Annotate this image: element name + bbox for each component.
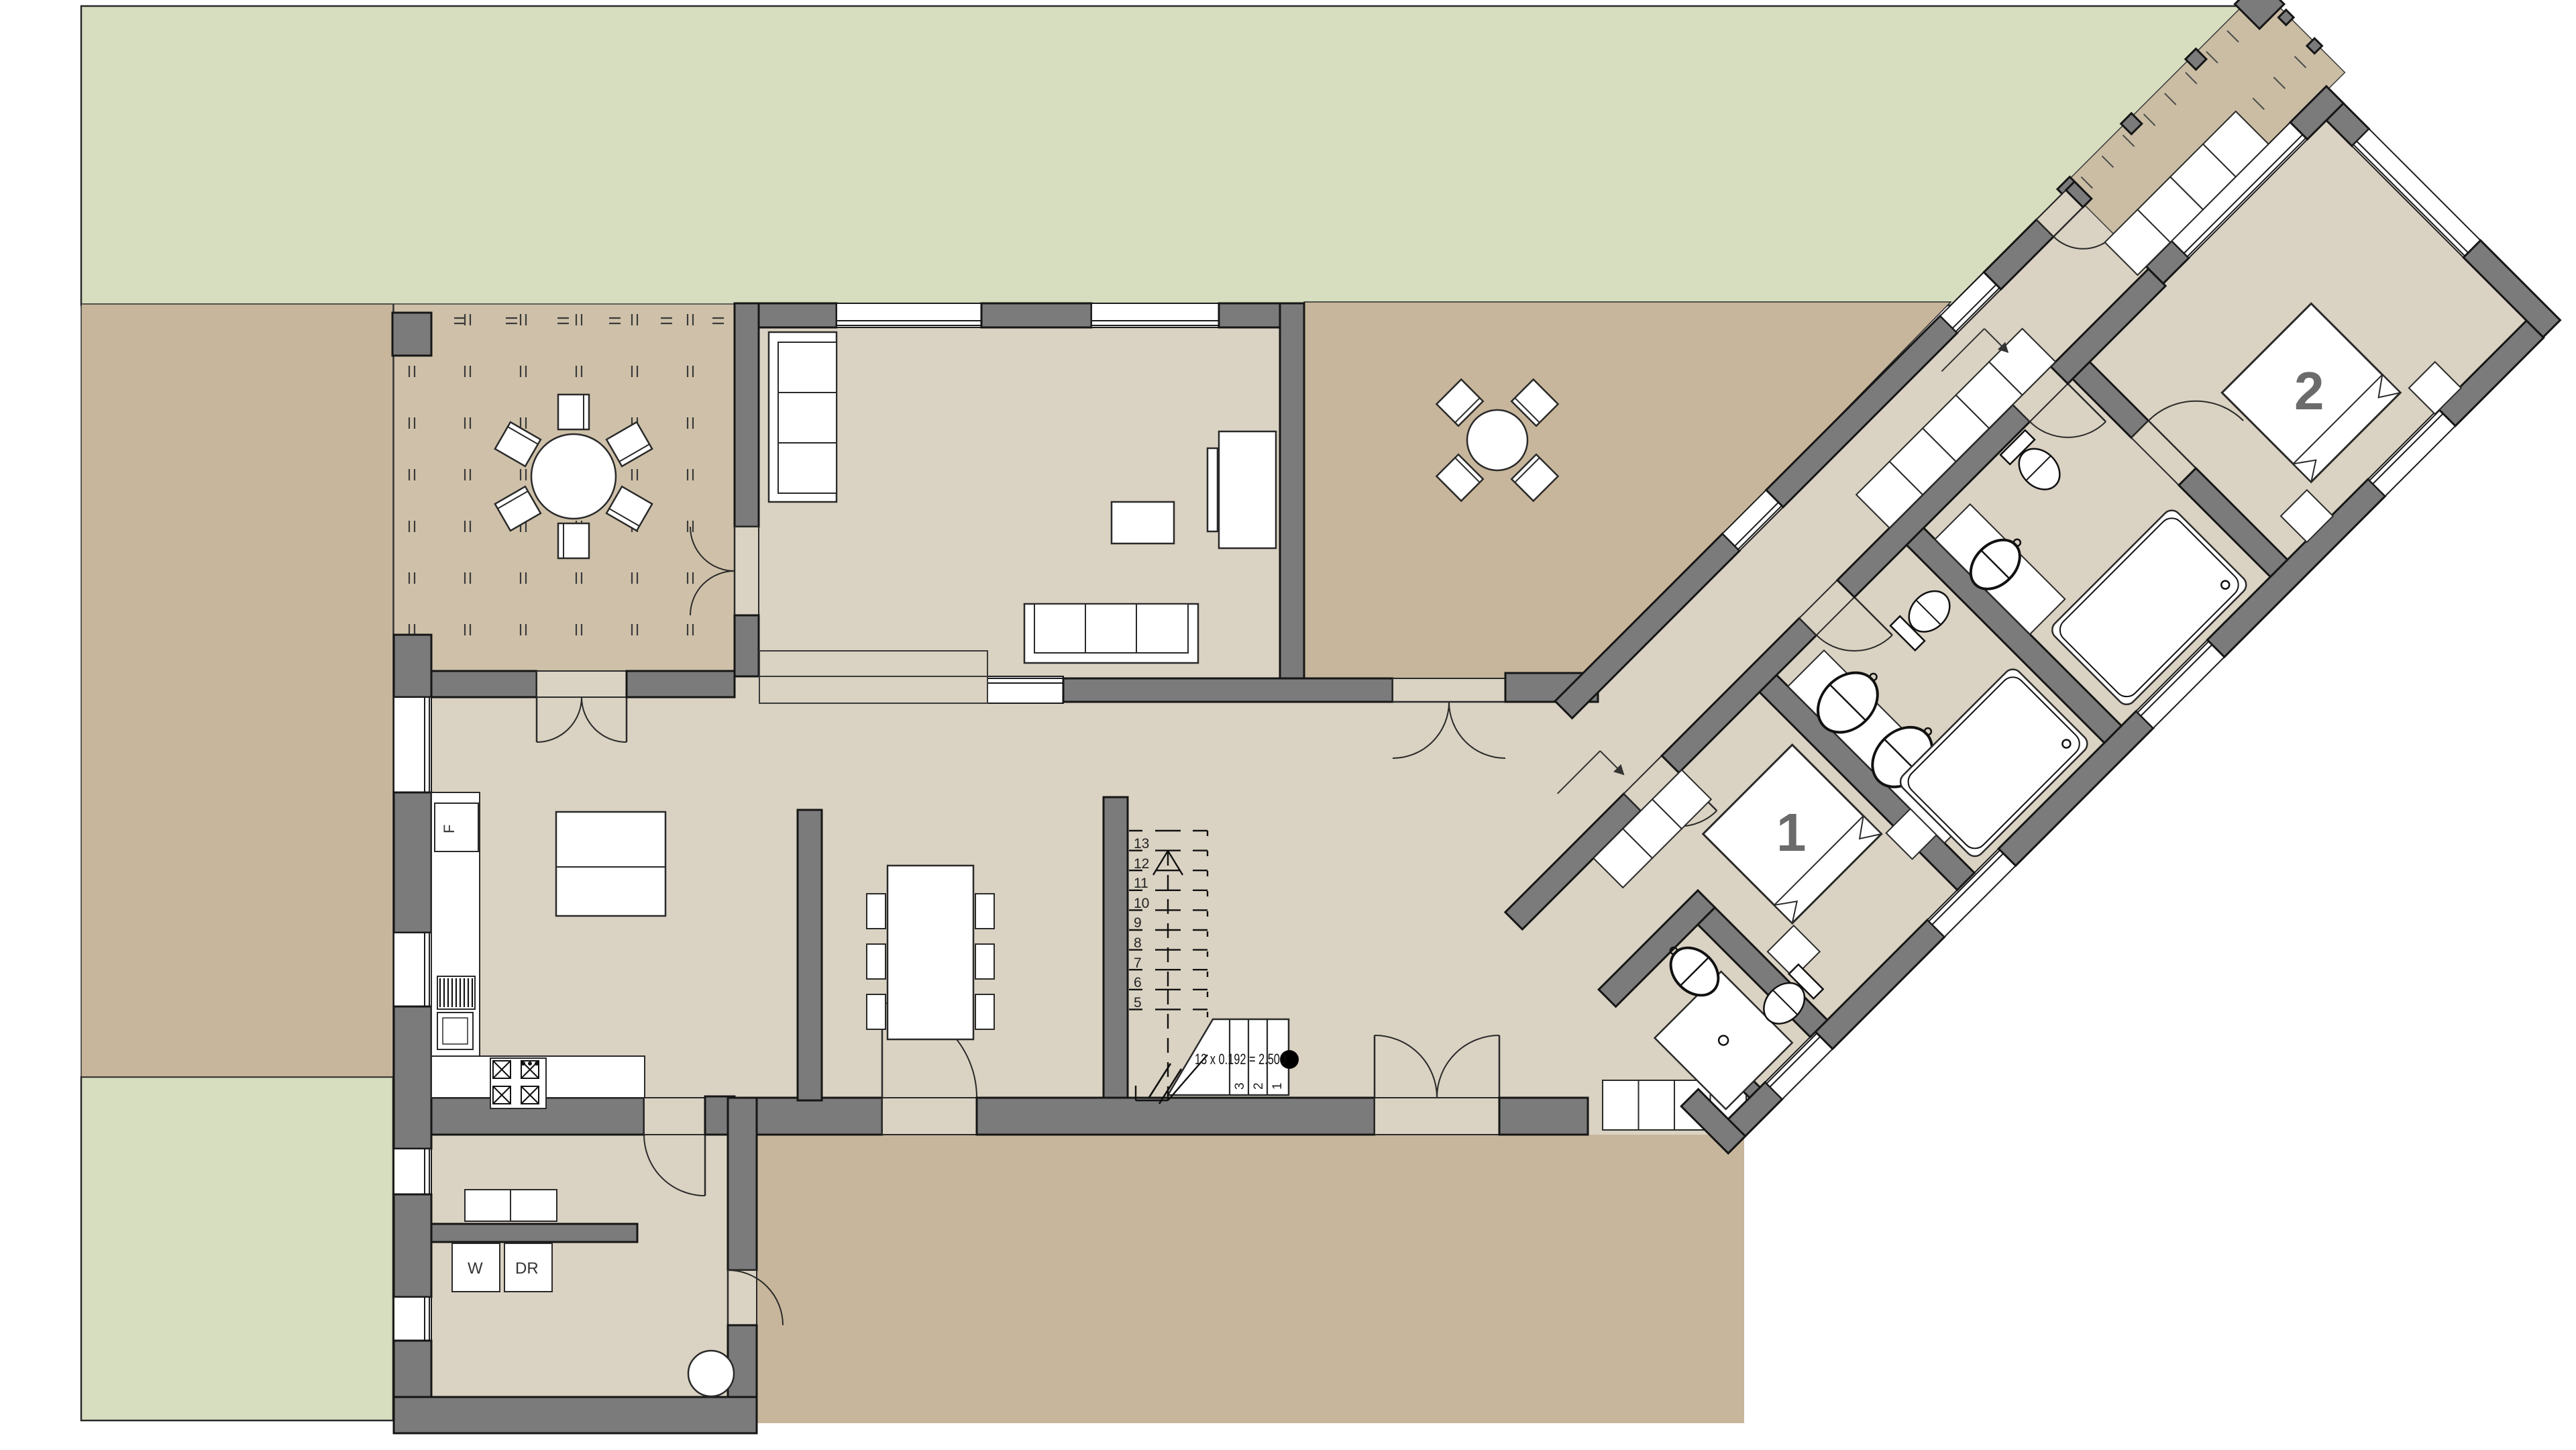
svg-text:12: 12 <box>1134 856 1149 872</box>
svg-text:2: 2 <box>2294 361 2324 421</box>
svg-text:W: W <box>468 1259 483 1278</box>
svg-text:5: 5 <box>1134 995 1142 1011</box>
svg-text:6: 6 <box>1134 975 1142 990</box>
svg-text:2: 2 <box>1252 1082 1266 1090</box>
svg-text:13 x 0.192 = 2.500: 13 x 0.192 = 2.500 <box>1195 1051 1286 1068</box>
svg-text:7: 7 <box>1134 955 1142 971</box>
svg-text:1: 1 <box>1271 1082 1285 1090</box>
svg-text:8: 8 <box>1134 935 1142 951</box>
svg-text:13: 13 <box>1134 836 1149 851</box>
svg-text:DR: DR <box>515 1259 539 1278</box>
svg-text:9: 9 <box>1134 915 1142 931</box>
svg-text:1: 1 <box>1776 802 1807 862</box>
svg-text:11: 11 <box>1134 876 1148 891</box>
svg-text:10: 10 <box>1134 896 1149 911</box>
svg-text:3: 3 <box>1233 1082 1247 1090</box>
svg-text:F: F <box>441 825 458 833</box>
